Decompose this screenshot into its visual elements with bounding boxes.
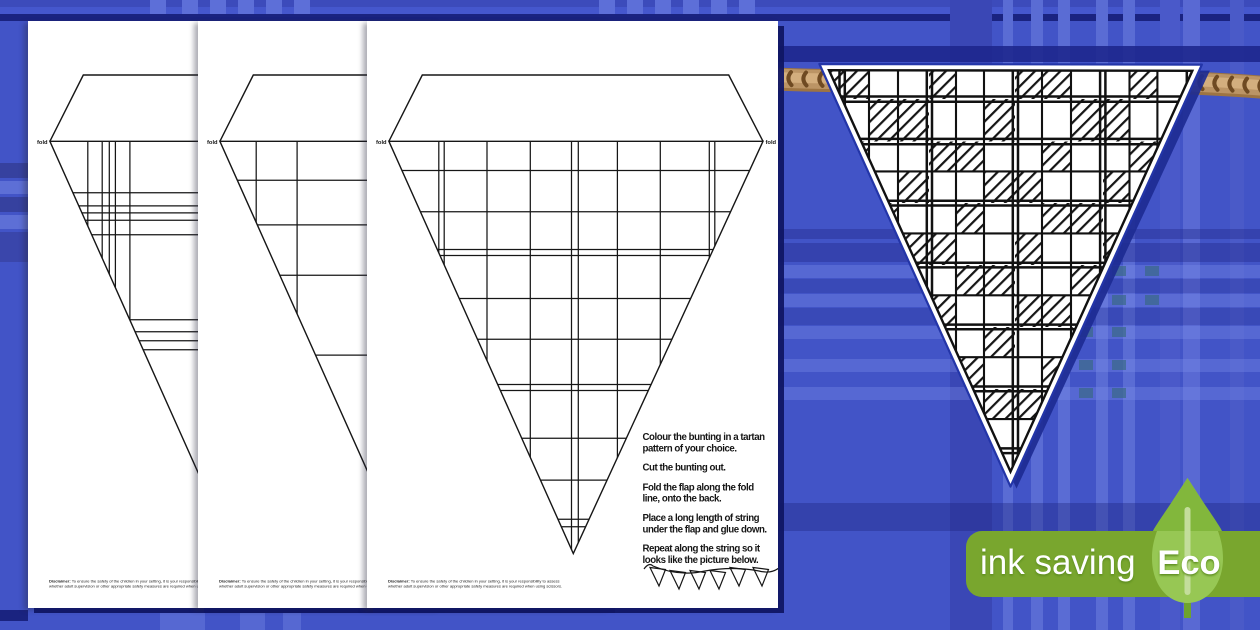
svg-text:Colour the bunting in a tartan: Colour the bunting in a tartan	[642, 432, 765, 443]
svg-text:whether adult supervision or o: whether adult supervision or other appro…	[388, 583, 562, 588]
svg-text:under the flap and glue down.: under the flap and glue down.	[642, 524, 767, 535]
svg-text:fold: fold	[207, 139, 218, 145]
svg-text:Cut the bunting out.: Cut the bunting out.	[642, 462, 726, 473]
svg-text:pattern of your choice.: pattern of your choice.	[642, 443, 737, 454]
svg-text:fold: fold	[376, 139, 387, 145]
svg-text:Place a long length of string: Place a long length of string	[642, 513, 759, 524]
svg-text:looks like the picture below.: looks like the picture below.	[642, 555, 759, 566]
svg-text:line, onto the back.: line, onto the back.	[642, 493, 721, 504]
svg-text:Repeat along the string so it: Repeat along the string so it	[642, 543, 760, 554]
svg-text:fold: fold	[765, 139, 776, 145]
svg-text:fold: fold	[37, 139, 48, 145]
svg-text:Fold the flap along the fold: Fold the flap along the fold	[642, 482, 754, 493]
